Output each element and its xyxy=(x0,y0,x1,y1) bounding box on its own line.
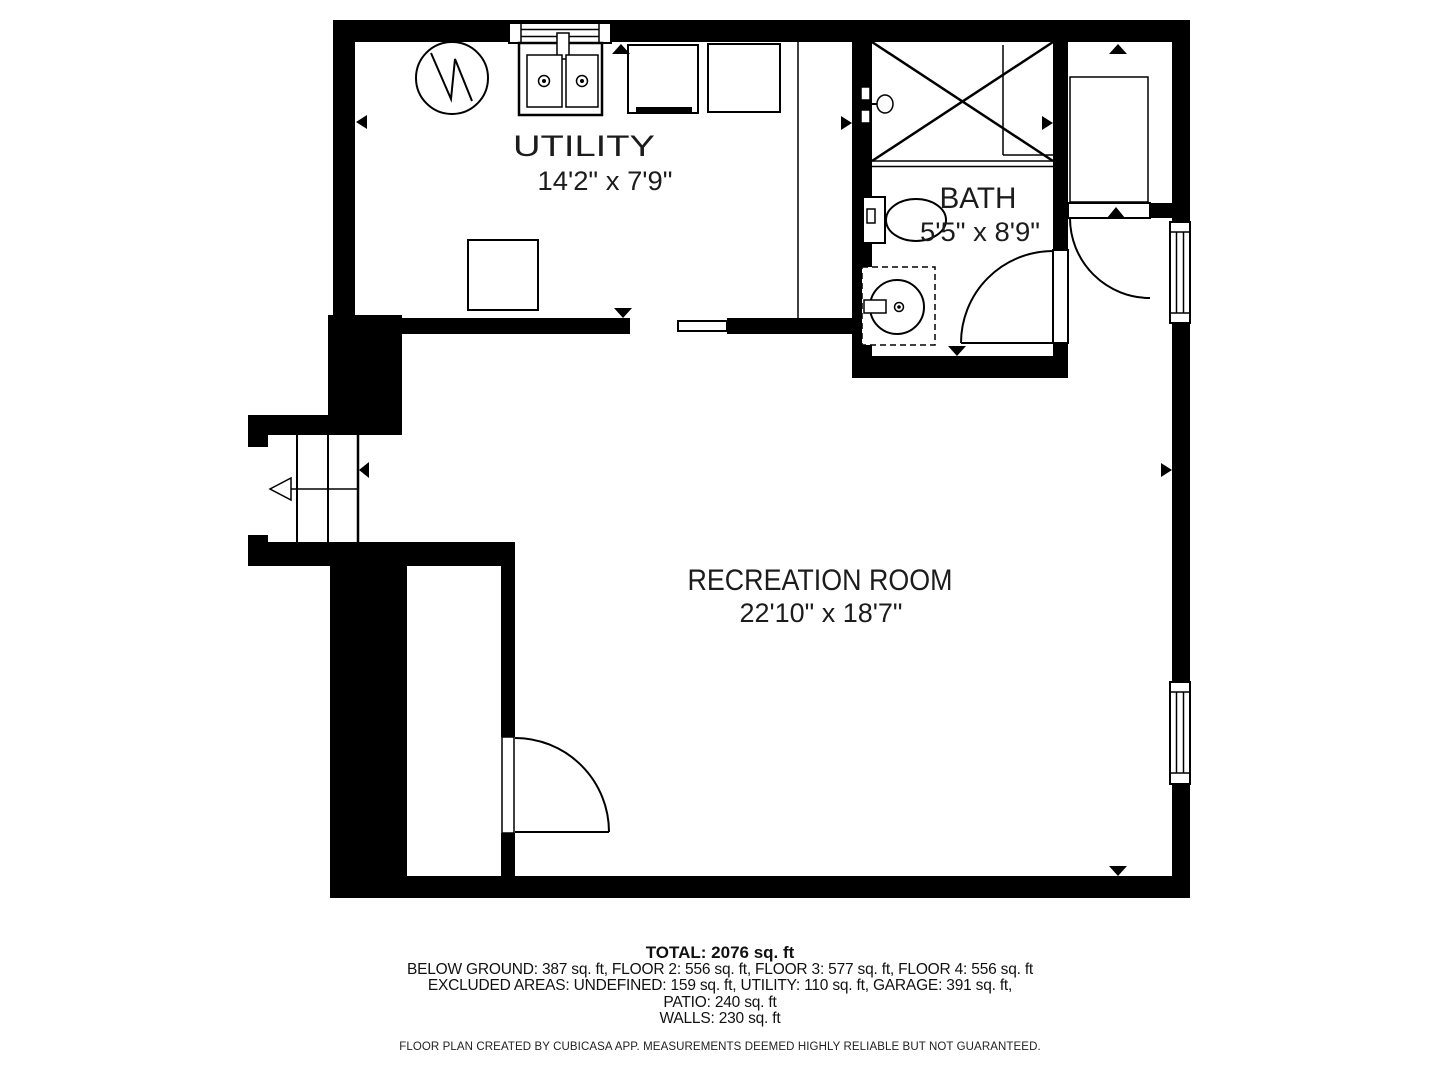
wall-closet-top xyxy=(407,542,515,566)
total-area: TOTAL: 2076 sq. ft xyxy=(0,944,1440,962)
stair-direction-arrow-icon xyxy=(270,478,291,500)
staircase xyxy=(270,433,369,542)
wall-stair-top-cap xyxy=(248,415,268,447)
wall-right-middle xyxy=(1172,323,1190,682)
marker-shower-icon xyxy=(1109,44,1127,54)
wall-closet-right-upper xyxy=(501,566,515,737)
walls-area-line: WALLS: 230 sq. ft xyxy=(0,1011,1440,1027)
closet-shelf xyxy=(1070,77,1148,202)
dryer xyxy=(708,44,780,112)
utility-label: UTILITY xyxy=(513,130,655,163)
hall-closet xyxy=(1068,77,1150,298)
wall-bath-bottom xyxy=(852,356,1068,378)
wall-right-lower xyxy=(1172,784,1190,898)
floor-plan: UTILITY 14'2" x 7'9" BATH 5'5" x 8'9" RE… xyxy=(0,0,1440,1080)
wall-bottom xyxy=(330,876,1190,898)
wall-divider-right xyxy=(727,318,852,334)
window-right-lower xyxy=(1170,682,1190,784)
shower xyxy=(872,42,1053,167)
wall-hall-piece xyxy=(1150,203,1190,218)
wall-stair-bottom-cap xyxy=(248,535,268,566)
floor-plan-page: UTILITY 14'2" x 7'9" BATH 5'5" x 8'9" RE… xyxy=(0,0,1440,1080)
storage-closet-door xyxy=(502,737,609,833)
wall-bath-right-upper xyxy=(1053,42,1068,250)
wall-left-column xyxy=(330,542,407,898)
stair-marker-icon xyxy=(359,462,369,478)
marker-divider-door-icon xyxy=(614,308,632,318)
bath-label: BATH xyxy=(940,182,1017,215)
bath-sink xyxy=(862,267,935,345)
window-right-upper xyxy=(1170,222,1190,323)
marker-bath-bottom-icon xyxy=(948,346,966,356)
laundry-sink xyxy=(519,33,602,115)
recreation-room-label: RECREATION ROOM xyxy=(688,564,953,597)
wall-left-upper xyxy=(333,20,355,315)
utility-sliding-door xyxy=(678,321,727,331)
marker-bottom-wall-icon xyxy=(1109,866,1127,876)
wall-divider-left xyxy=(402,318,630,334)
marker-bath-right-icon xyxy=(1042,116,1053,130)
bath-door xyxy=(961,250,1068,343)
floors-area-line: BELOW GROUND: 387 sq. ft, FLOOR 2: 556 s… xyxy=(0,962,1440,978)
marker-left-wall-icon xyxy=(356,115,367,129)
marker-right-wall-icon xyxy=(1161,463,1172,477)
recreation-room-dimensions: 22'10" x 18'7" xyxy=(740,598,903,628)
bath-dimensions: 5'5" x 8'9" xyxy=(920,217,1040,247)
freezer xyxy=(468,240,538,310)
sink-faucet-icon xyxy=(864,300,886,313)
disclaimer-text: FLOOR PLAN CREATED BY CUBICASA APP. MEAS… xyxy=(0,1041,1440,1053)
wall-top xyxy=(333,20,1190,42)
wall-markers xyxy=(356,44,1172,876)
wall-right-upper xyxy=(1172,20,1190,222)
wall-left-block xyxy=(328,315,402,435)
area-summary: TOTAL: 2076 sq. ft BELOW GROUND: 387 sq.… xyxy=(0,944,1440,1053)
excluded-areas-line: EXCLUDED AREAS: UNDEFINED: 159 sq. ft, U… xyxy=(0,978,1440,994)
marker-bath-left-icon xyxy=(841,116,852,130)
water-heater xyxy=(416,42,488,114)
patio-area-line: PATIO: 240 sq. ft xyxy=(0,995,1440,1011)
washer xyxy=(628,45,698,113)
utility-dimensions: 14'2" x 7'9" xyxy=(538,166,673,196)
walls xyxy=(248,20,1190,898)
